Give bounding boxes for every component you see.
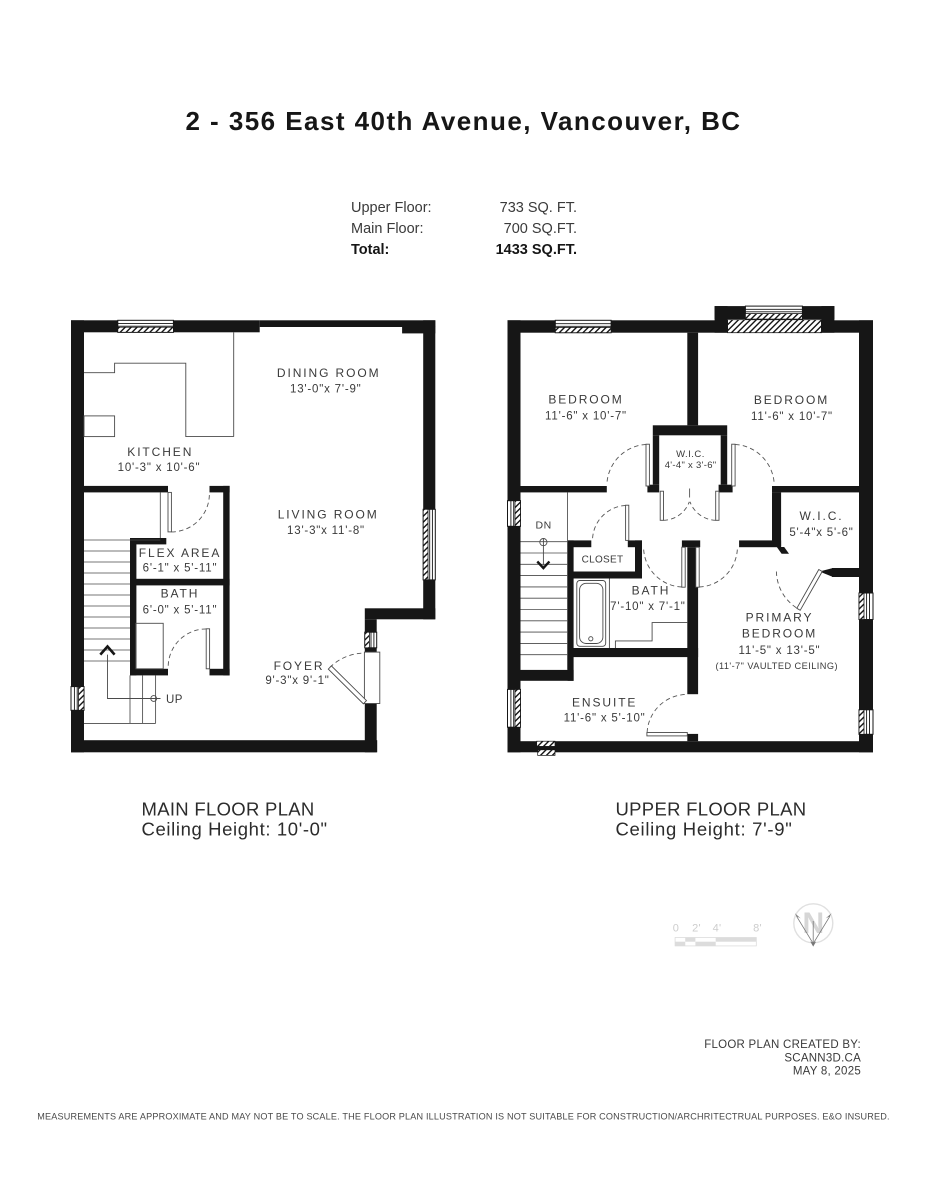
svg-text:11'-5" x 13'-5": 11'-5" x 13'-5"	[739, 645, 821, 657]
svg-text:6'-1" x 5'-11": 6'-1" x 5'-11"	[143, 562, 218, 574]
svg-text:MAY 8, 2025: MAY 8, 2025	[793, 1066, 861, 1078]
svg-text:9'-3"x 9'-1": 9'-3"x 9'-1"	[265, 675, 329, 687]
svg-text:UP: UP	[166, 694, 183, 706]
svg-text:FOYER: FOYER	[274, 659, 325, 673]
svg-text:Ceiling Height: 10'-0": Ceiling Height: 10'-0"	[142, 819, 328, 840]
svg-text:BEDROOM: BEDROOM	[754, 393, 829, 407]
svg-text:700 SQ.FT.: 700 SQ.FT.	[504, 221, 577, 237]
svg-text:BATH: BATH	[632, 584, 671, 598]
svg-text:W.I.C.: W.I.C.	[676, 449, 705, 460]
svg-text:MEASUREMENTS ARE APPROXIMATE A: MEASUREMENTS ARE APPROXIMATE AND MAY NOT…	[37, 1112, 890, 1122]
svg-text:2': 2'	[692, 923, 701, 935]
svg-text:Upper Floor:: Upper Floor:	[351, 200, 432, 216]
svg-text:PRIMARY: PRIMARY	[746, 610, 814, 624]
svg-text:6'-0" x 5'-11": 6'-0" x 5'-11"	[143, 605, 218, 617]
svg-text:5'-4"x 5'-6": 5'-4"x 5'-6"	[789, 527, 853, 539]
svg-text:BEDROOM: BEDROOM	[742, 627, 817, 641]
svg-text:FLOOR PLAN CREATED BY:: FLOOR PLAN CREATED BY:	[704, 1039, 861, 1051]
svg-text:10'-3" x 10'-6": 10'-3" x 10'-6"	[118, 462, 201, 474]
svg-text:UPPER FLOOR PLAN: UPPER FLOOR PLAN	[616, 799, 807, 820]
svg-text:ENSUITE: ENSUITE	[572, 695, 637, 709]
svg-text:733 SQ. FT.: 733 SQ. FT.	[500, 200, 577, 216]
svg-text:DN: DN	[536, 520, 552, 532]
svg-text:1433 SQ.FT.: 1433 SQ.FT.	[496, 242, 577, 258]
svg-text:DINING ROOM: DINING ROOM	[277, 366, 381, 380]
svg-text:BATH: BATH	[161, 586, 200, 600]
svg-text:CLOSET: CLOSET	[582, 554, 624, 565]
svg-text:(11'-7" VAULTED CEILING): (11'-7" VAULTED CEILING)	[715, 661, 838, 671]
svg-text:8': 8'	[753, 923, 762, 935]
svg-text:0: 0	[673, 923, 679, 935]
svg-text:SCANN3D.CA: SCANN3D.CA	[784, 1053, 861, 1065]
svg-text:Ceiling Height: 7'-9": Ceiling Height: 7'-9"	[616, 819, 793, 840]
svg-text:KITCHEN: KITCHEN	[127, 445, 193, 459]
svg-text:11'-6" x 10'-7": 11'-6" x 10'-7"	[545, 411, 627, 423]
svg-text:13'-0"x 7'-9": 13'-0"x 7'-9"	[290, 384, 362, 396]
svg-text:Main Floor:: Main Floor:	[351, 221, 424, 237]
svg-text:2 - 356 East 40th Avenue, Vanc: 2 - 356 East 40th Avenue, Vancouver, BC	[185, 106, 741, 136]
svg-text:7'-10" x 7'-1": 7'-10" x 7'-1"	[610, 601, 686, 613]
svg-text:11'-6" x 5'-10": 11'-6" x 5'-10"	[564, 713, 646, 725]
svg-text:W.I.C.: W.I.C.	[799, 509, 843, 523]
svg-text:FLEX AREA: FLEX AREA	[139, 546, 221, 560]
svg-text:4'-4" x 3'-6": 4'-4" x 3'-6"	[665, 460, 717, 471]
svg-text:13'-3"x 11'-8": 13'-3"x 11'-8"	[287, 525, 365, 537]
svg-text:MAIN FLOOR PLAN: MAIN FLOOR PLAN	[142, 799, 315, 820]
svg-text:LIVING ROOM: LIVING ROOM	[278, 508, 379, 522]
svg-text:11'-6" x 10'-7": 11'-6" x 10'-7"	[751, 411, 833, 423]
svg-text:4': 4'	[713, 923, 722, 935]
svg-text:Total:: Total:	[351, 242, 389, 258]
svg-text:BEDROOM: BEDROOM	[548, 392, 623, 406]
